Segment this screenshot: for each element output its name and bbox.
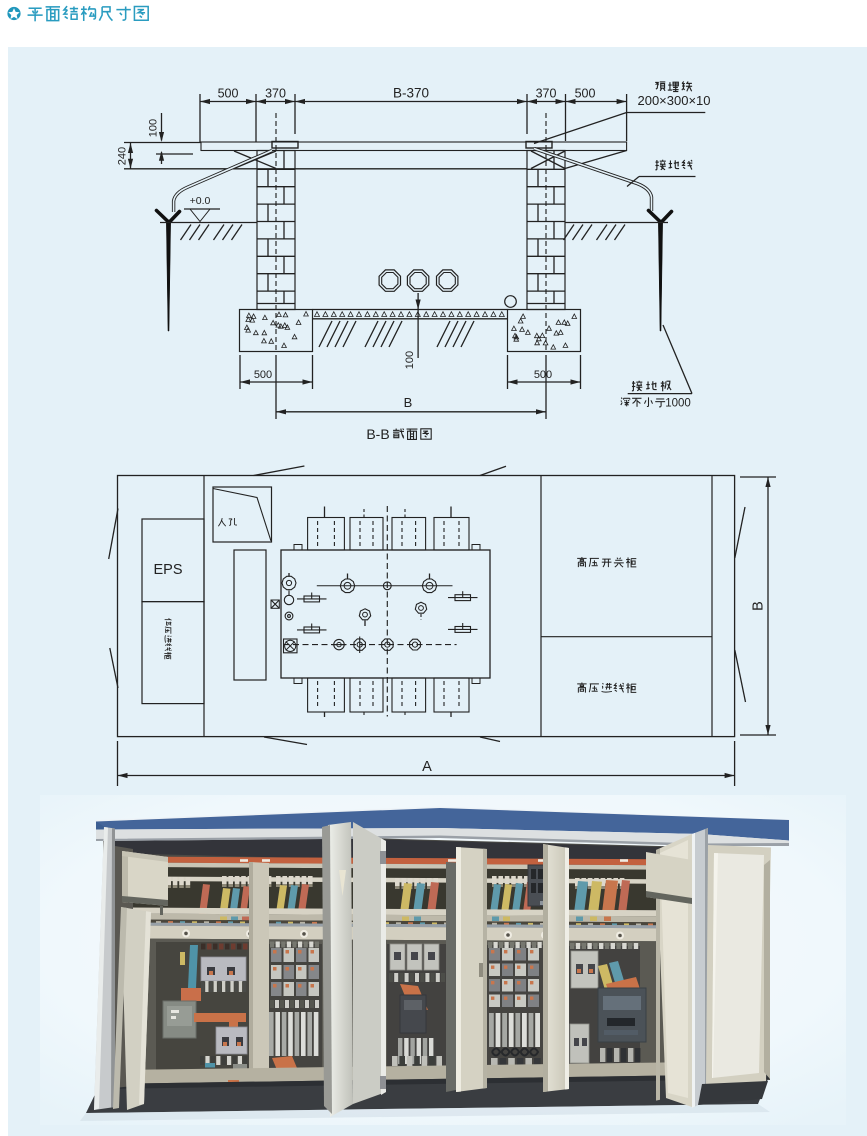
svg-text:1000: 1000 <box>665 398 691 410</box>
svg-text:100: 100 <box>404 351 416 369</box>
svg-text:B: B <box>404 395 413 410</box>
svg-text:B-B: B-B <box>366 426 389 442</box>
svg-text:370: 370 <box>265 87 286 101</box>
svg-text:B: B <box>751 601 767 611</box>
svg-text:100: 100 <box>148 119 160 137</box>
svg-text:500: 500 <box>254 369 272 381</box>
svg-text:370: 370 <box>536 87 557 101</box>
svg-text:500: 500 <box>534 369 552 381</box>
svg-text:500: 500 <box>218 87 239 101</box>
svg-text:EPS: EPS <box>153 562 182 578</box>
svg-text:240: 240 <box>117 147 129 165</box>
svg-text:500: 500 <box>575 87 596 101</box>
svg-text:200×300×10: 200×300×10 <box>637 93 710 108</box>
svg-text:+0.0: +0.0 <box>190 195 211 207</box>
svg-text:B-370: B-370 <box>393 86 429 101</box>
svg-text:A: A <box>422 759 432 775</box>
